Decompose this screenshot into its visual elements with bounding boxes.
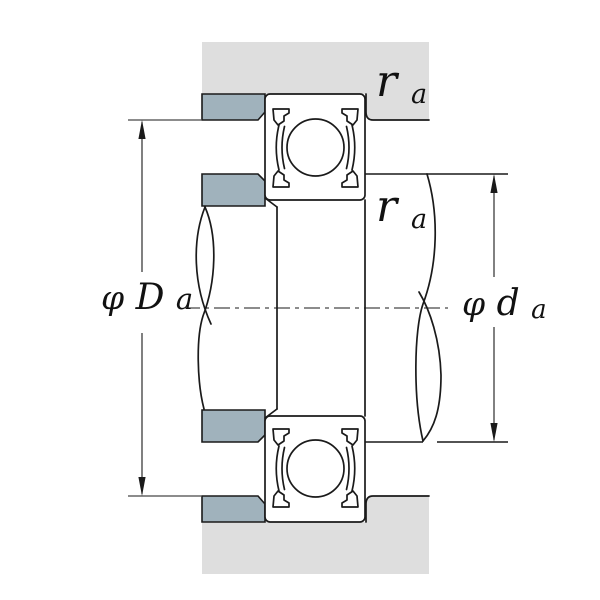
break-curve [196,207,211,324]
dimension-housing-abutment: φ D a [101,120,201,496]
bearing-ball [287,119,344,176]
housing-shoulder-block-top-left [202,94,265,120]
arrow-down [138,477,145,496]
bearing-mounting-diagram: φ D a φ d a r a r a [0,0,600,600]
label-phi-da: φ d a [462,283,547,325]
shaft-shoulder-block-bottom-left [202,410,265,442]
arrow-up [138,120,145,139]
arrow-down [490,423,497,442]
diagram-canvas: φ D a φ d a r a r a [0,0,600,600]
housing-shoulder-block-bottom-left [202,496,265,522]
shaft-shoulder-block-top-left [202,174,265,206]
dimension-shaft-abutment: φ d a [462,174,547,442]
label-phi-Da: φ D a [101,277,193,318]
arrow-up [490,174,497,193]
break-curve [419,292,441,441]
bearing-ball [287,440,344,497]
label-ra-shaft: r a [376,181,427,235]
bearing-top [265,94,365,200]
bearing-bottom [265,416,365,522]
